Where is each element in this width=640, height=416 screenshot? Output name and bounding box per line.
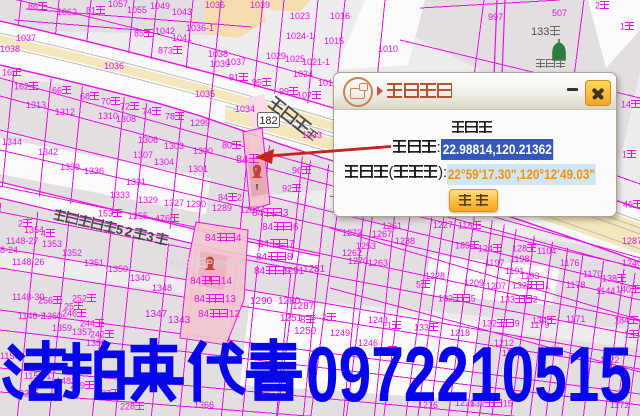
svg-text:0972210515: 0972210515 xyxy=(306,336,632,416)
